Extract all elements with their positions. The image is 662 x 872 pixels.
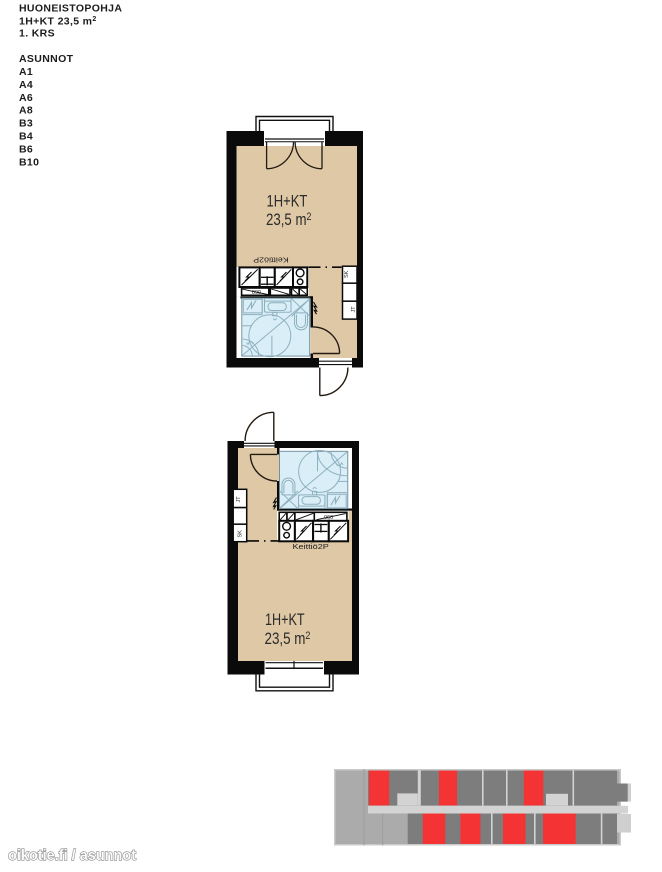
svg-text:A8: A8 [19, 105, 33, 117]
svg-text:A6: A6 [19, 92, 33, 104]
svg-text:HUONEISTOPOHJA: HUONEISTOPOHJA [19, 3, 122, 15]
svg-text:B3: B3 [19, 118, 33, 130]
svg-text:SK: SK [238, 530, 244, 538]
svg-text:B4: B4 [19, 131, 33, 143]
svg-text:A4: A4 [19, 79, 33, 91]
svg-text:1H+KT: 1H+KT [267, 193, 308, 211]
svg-text:SK: SK [344, 270, 350, 278]
svg-text:A1: A1 [19, 66, 33, 78]
svg-text:23,5 m2: 23,5 m2 [265, 630, 311, 648]
svg-text:Keittiö2P: Keittiö2P [293, 542, 329, 551]
svg-text:JT: JT [351, 306, 357, 313]
svg-text:1H+KT: 1H+KT [265, 611, 305, 629]
svg-text:1. KRS: 1. KRS [19, 27, 55, 39]
svg-text:Keittiö2P: Keittiö2P [253, 256, 289, 265]
svg-text:oikotie.fi / asunnot: oikotie.fi / asunnot [8, 848, 136, 864]
svg-text:ASUNNOT: ASUNNOT [19, 53, 74, 65]
svg-text:B6: B6 [19, 143, 33, 155]
svg-text:JT: JT [236, 496, 242, 503]
svg-text:23,5 m2: 23,5 m2 [266, 211, 311, 229]
svg-text:1H+KT 23,5 m2: 1H+KT 23,5 m2 [19, 15, 97, 27]
svg-text:B10: B10 [19, 156, 39, 168]
